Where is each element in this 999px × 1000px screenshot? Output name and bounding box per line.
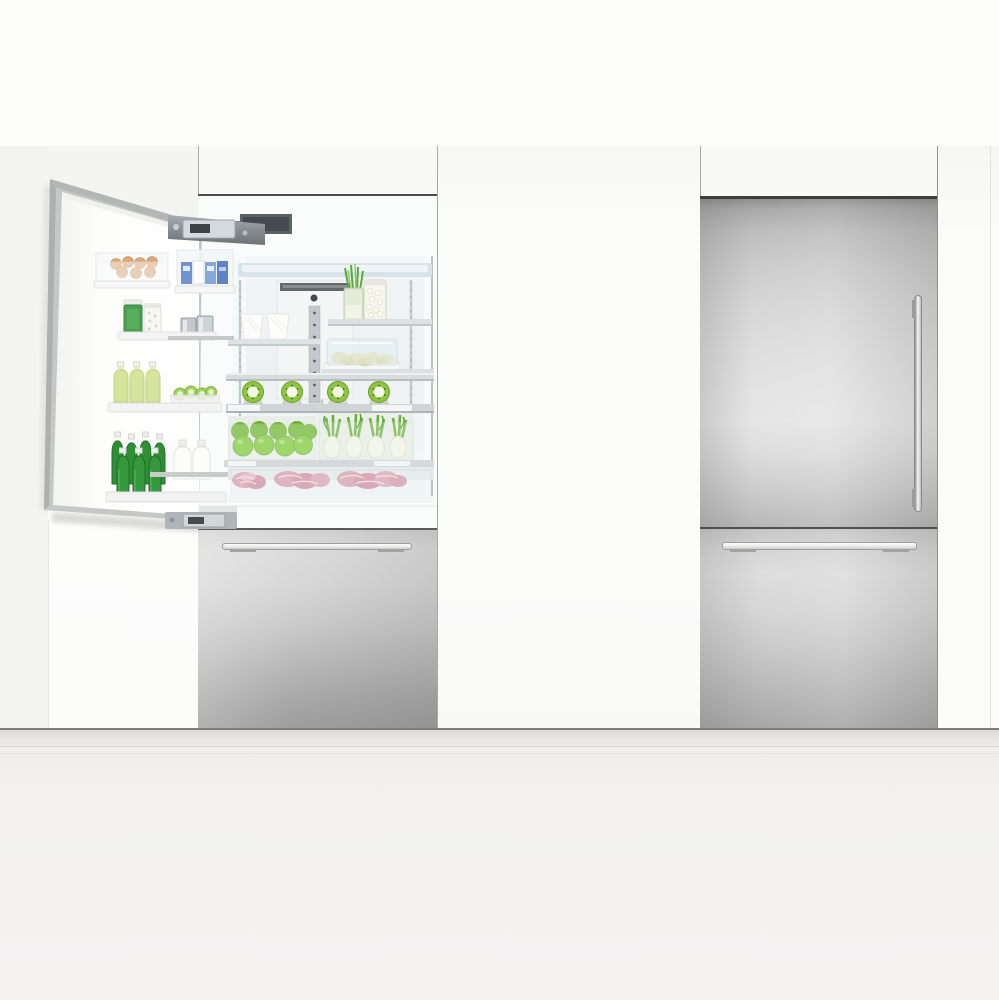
open-fridge-door — [38, 168, 300, 548]
panel-seam — [937, 146, 938, 729]
door-shelf-3 — [108, 403, 222, 412]
door-bin-packs — [175, 250, 235, 293]
floor-seam — [0, 746, 999, 747]
right-fridge-door — [700, 196, 937, 527]
right-freezer-handle — [722, 542, 917, 550]
panel-seam — [437, 146, 438, 729]
right-fridge-door-handle — [914, 295, 922, 512]
cabinet-panel-middle — [438, 146, 700, 729]
panel-seam — [48, 520, 49, 729]
toe-kick — [0, 730, 999, 746]
upper-wall — [0, 0, 999, 146]
egg-tray — [94, 253, 170, 288]
cabinet-band-above-right-fridge — [700, 146, 937, 197]
fennel-bin — [318, 413, 414, 460]
left-freezer-drawer — [198, 528, 437, 728]
door-shelf-4-trim — [150, 472, 228, 477]
kitchen-scene — [0, 0, 999, 1000]
panel-seam — [990, 146, 991, 729]
juice-bottles — [114, 362, 160, 402]
floor — [0, 746, 999, 1000]
covered-dish — [324, 339, 400, 370]
garlic-jar — [364, 280, 386, 320]
bottom-hinge — [165, 512, 237, 529]
floor-seam — [0, 753, 999, 754]
door-shelf-4 — [106, 492, 226, 502]
right-freezer-drawer — [700, 529, 937, 728]
